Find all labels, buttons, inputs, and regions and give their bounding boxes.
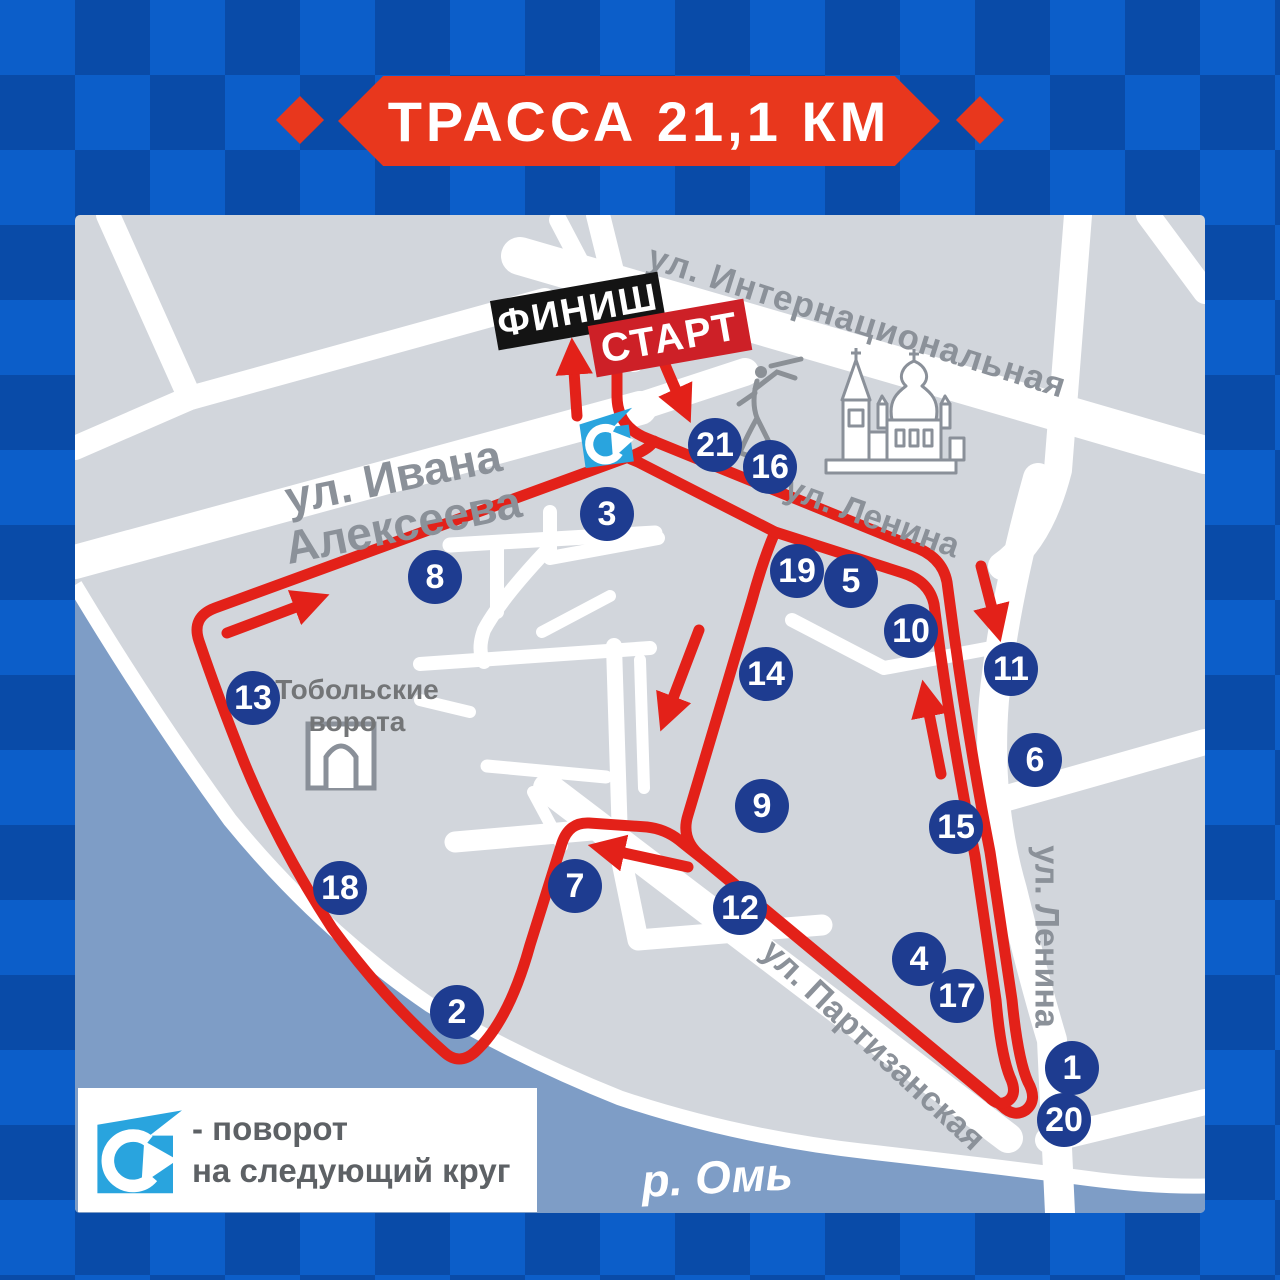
arrow-middle-down <box>667 630 699 714</box>
course-title: ТРАССА 21,1 КМ <box>388 89 891 154</box>
arrow-ivana-right <box>227 601 312 633</box>
tobolsk-label-line2: ворота <box>252 706 462 738</box>
legend-line2: на следующий круг <box>192 1150 511 1192</box>
street-label-lenina-vertical: ул. Ленина <box>1027 837 1066 1037</box>
river-label: р. Омь <box>606 1144 829 1209</box>
arrow-right-up <box>926 698 941 774</box>
banner-diamond-left-icon <box>276 96 324 144</box>
legend-line1: - поворот <box>192 1108 511 1150</box>
landmark-label-tobolsk-gates: Тобольские ворота <box>252 674 462 738</box>
course-banner: ТРАССА 21,1 КМ <box>338 76 940 166</box>
tobolsk-label-line1: Тобольские <box>252 674 462 706</box>
legend: - поворот на следующий круг <box>78 1088 537 1212</box>
lap-turn-legend-icon <box>92 1105 182 1195</box>
legend-text: - поворот на следующий круг <box>192 1108 511 1192</box>
banner-diamond-right-icon <box>956 96 1004 144</box>
finish-arrow <box>573 356 577 416</box>
